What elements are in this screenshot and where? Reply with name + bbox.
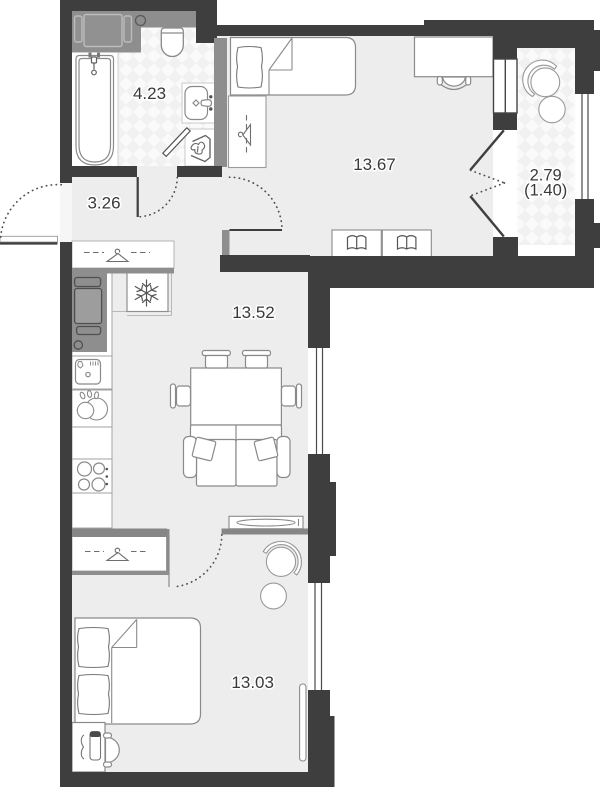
svg-text:3.26: 3.26 (87, 193, 120, 212)
svg-text:13.67: 13.67 (353, 155, 396, 174)
svg-text:13.52: 13.52 (232, 303, 275, 322)
svg-text:13.03: 13.03 (231, 673, 274, 692)
svg-text:(1.40): (1.40) (524, 182, 567, 200)
svg-text:4.23: 4.23 (133, 84, 166, 103)
